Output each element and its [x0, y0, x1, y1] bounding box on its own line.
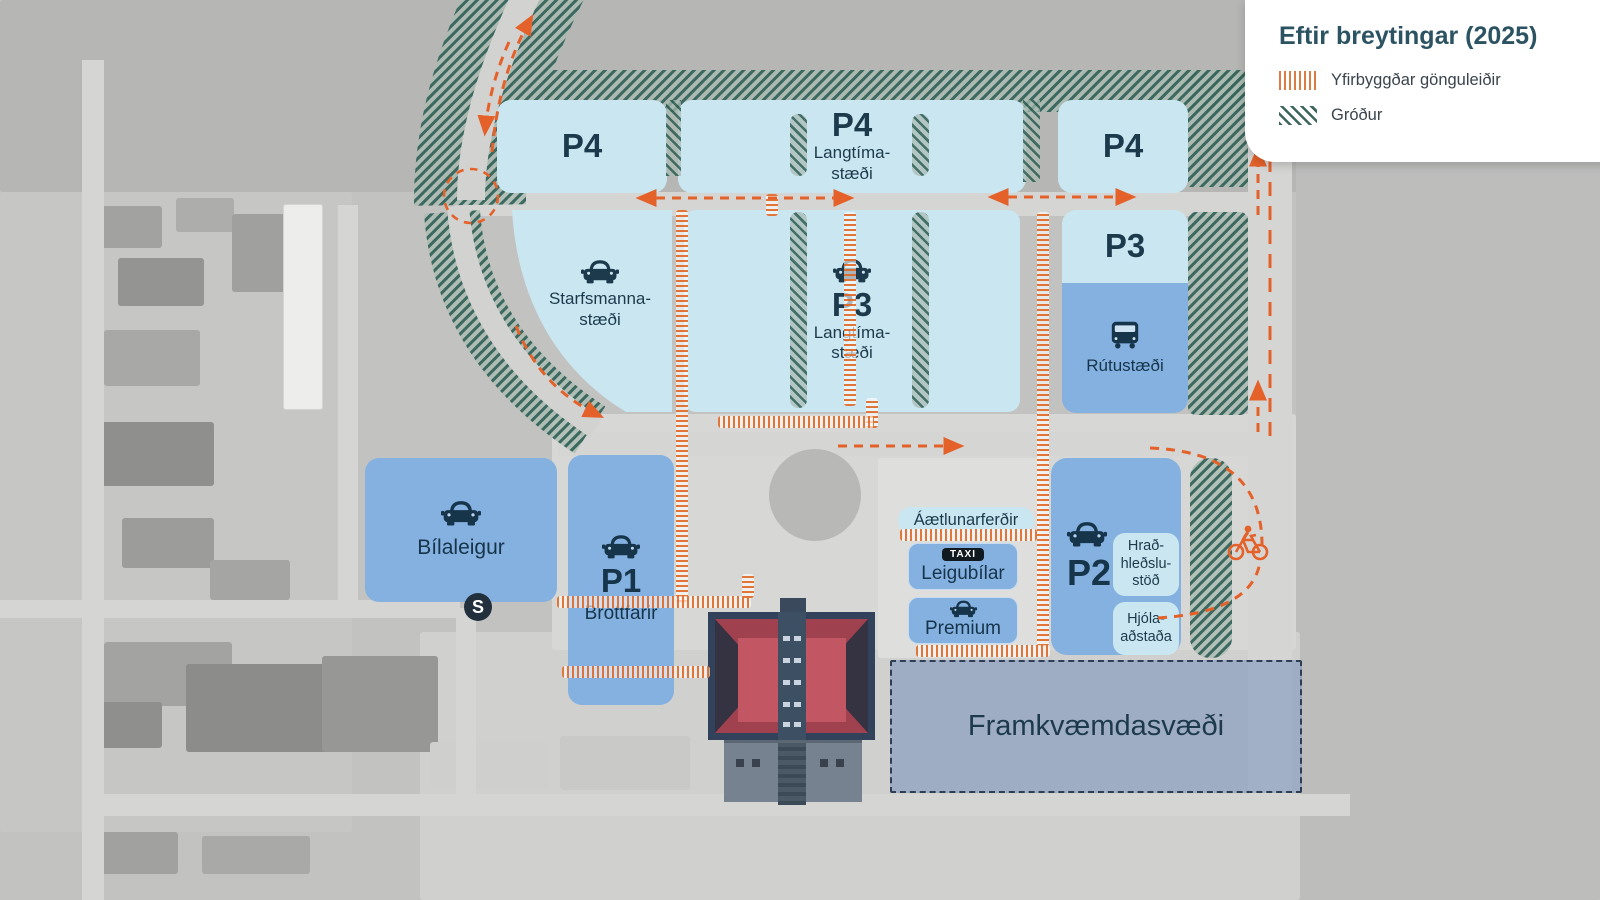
car-icon	[581, 259, 619, 285]
airport-parking-map: P4 P4 Langtíma- stæði P4 P3 Rútustæði St…	[0, 0, 1600, 900]
terminal-main-block	[708, 612, 875, 740]
terminal-annex	[724, 740, 862, 802]
terminal-loop	[769, 449, 861, 541]
covered-walkway	[1037, 212, 1049, 646]
shuttle-stop-label: S	[472, 597, 484, 618]
zone-label: Premium	[925, 618, 1001, 641]
zone-sublabel: stöð	[1132, 573, 1159, 591]
vegetation-strip	[1023, 100, 1040, 182]
construction-label: Framkvæmdasvæði	[968, 710, 1224, 743]
zone-sublabel: hleðslu-	[1121, 556, 1172, 574]
vegetation-band-right-upper	[1188, 72, 1248, 187]
vegetation-strip	[912, 212, 929, 408]
zone-p3-right: P3	[1062, 210, 1188, 283]
walkway-swatch-icon	[1279, 71, 1317, 90]
legend-item-label: Gróður	[1331, 106, 1382, 125]
terminal-roof-panel	[804, 638, 846, 722]
zone-bilaleigur: Bílaleigur	[365, 458, 557, 602]
zone-rutustaedi: Rútustæði	[1062, 283, 1188, 413]
zone-label: Bílaleigur	[417, 535, 505, 560]
terminal-building	[708, 598, 875, 803]
zone-premium: Premium	[908, 597, 1018, 644]
vegetation-strip	[666, 100, 681, 176]
zone-hradhledslustod: Hrað- hleðslu- stöð	[1113, 533, 1179, 596]
car-icon	[1067, 521, 1107, 548]
zone-starfsmanna: Starfsmanna- stæði	[520, 240, 680, 350]
covered-walkway	[900, 529, 1037, 541]
bus-icon	[1107, 320, 1143, 350]
car-icon	[602, 534, 640, 560]
legend-title: Eftir breytingar (2025)	[1279, 22, 1600, 51]
legend-panel: Eftir breytingar (2025) Yfirbyggðar göng…	[1245, 0, 1600, 162]
vegetation-swatch-icon	[1279, 106, 1317, 125]
zone-label: Áætlunarferðir	[914, 510, 1019, 530]
zone-sublabel: stæði	[579, 310, 621, 331]
zone-sublabel: aðstaða	[1120, 629, 1172, 647]
zone-p4-center: P4 Langtíma- stæði	[678, 100, 1026, 193]
zone-label: P2	[1067, 554, 1111, 592]
covered-walkway	[742, 574, 754, 598]
legend-item-walkways: Yfirbyggðar gönguleiðir	[1279, 71, 1600, 90]
vegetation-band-right-lower	[1190, 458, 1232, 658]
zone-sublabel: Langtíma-	[814, 143, 891, 164]
zone-label: P4	[1103, 129, 1143, 164]
zone-label: Leigubílar	[921, 563, 1004, 586]
zone-p4-right: P4	[1058, 100, 1188, 193]
taxi-badge: TAXI	[942, 548, 984, 561]
zone-sublabel: stæði	[831, 164, 873, 185]
zone-leigubilar: TAXI Leigubílar	[908, 543, 1018, 590]
covered-walkway	[562, 666, 710, 678]
vegetation-strip	[790, 212, 807, 408]
covered-walkway	[557, 596, 751, 608]
zone-sublabel: Starfsmanna-	[549, 289, 651, 310]
zone-label: Rútustæði	[1086, 356, 1163, 377]
construction-area: Framkvæmdasvæði	[890, 660, 1302, 793]
car-icon	[441, 500, 481, 527]
shuttle-stop-badge: S	[464, 593, 492, 621]
legend-item-label: Yfirbyggðar gönguleiðir	[1331, 71, 1501, 90]
zone-label: P3	[1105, 229, 1145, 264]
covered-walkway	[766, 194, 778, 216]
vegetation-strip	[912, 114, 929, 176]
covered-walkway	[844, 212, 856, 406]
zone-sublabel: Hrað-	[1128, 538, 1164, 556]
vegetation-strip	[790, 114, 807, 176]
zone-sublabel: Hjóla-	[1127, 611, 1165, 629]
terminal-spine	[778, 612, 806, 740]
covered-walkway	[676, 210, 688, 602]
zone-label: P1	[601, 564, 641, 599]
covered-walkway	[916, 645, 1050, 657]
covered-walkway	[718, 416, 874, 428]
zone-label: P4	[562, 129, 602, 164]
zone-p4-left: P4	[497, 100, 667, 193]
legend-item-vegetation: Gróður	[1279, 106, 1600, 125]
terminal-roof-panel	[738, 638, 780, 722]
vegetation-band-right-mid	[1188, 212, 1248, 415]
zone-hjolaadstada: Hjóla- aðstaða	[1113, 602, 1179, 655]
car-icon	[950, 600, 977, 618]
zone-label: P4	[832, 108, 872, 143]
